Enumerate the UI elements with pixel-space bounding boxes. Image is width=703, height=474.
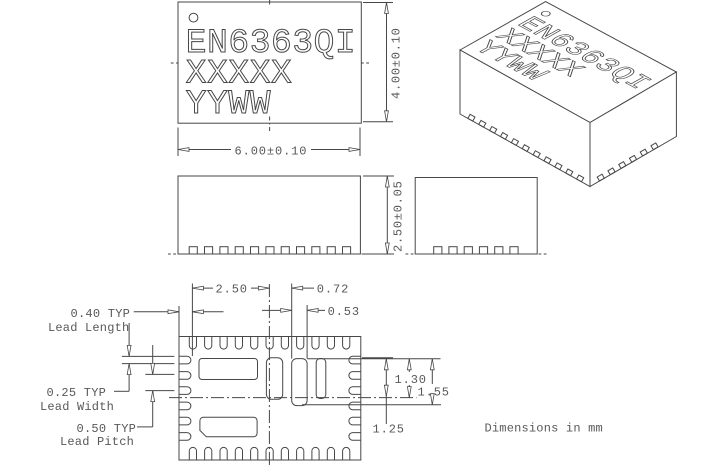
svg-text:0.25 TYP: 0.25 TYP bbox=[47, 386, 107, 400]
svg-text:YYWW: YYWW bbox=[186, 85, 271, 124]
svg-text:0.53: 0.53 bbox=[328, 305, 360, 319]
svg-text:0.50 TYP: 0.50 TYP bbox=[77, 422, 137, 436]
svg-text:Dimensions in mm: Dimensions in mm bbox=[485, 422, 603, 436]
svg-text:2.50: 2.50 bbox=[216, 283, 248, 297]
svg-text:Lead Pitch: Lead Pitch bbox=[60, 435, 134, 449]
svg-text:Lead Width: Lead Width bbox=[40, 400, 114, 414]
svg-text:6.00±0.10: 6.00±0.10 bbox=[235, 145, 308, 159]
svg-text:1.55: 1.55 bbox=[418, 386, 450, 400]
svg-text:2.50±0.05: 2.50±0.05 bbox=[392, 180, 406, 252]
svg-text:4.00±0.10: 4.00±0.10 bbox=[390, 27, 404, 99]
svg-text:0.72: 0.72 bbox=[317, 283, 349, 297]
svg-text:Lead Length: Lead Length bbox=[48, 321, 129, 335]
svg-text:0.40 TYP: 0.40 TYP bbox=[71, 307, 131, 321]
svg-text:1.25: 1.25 bbox=[373, 423, 405, 437]
